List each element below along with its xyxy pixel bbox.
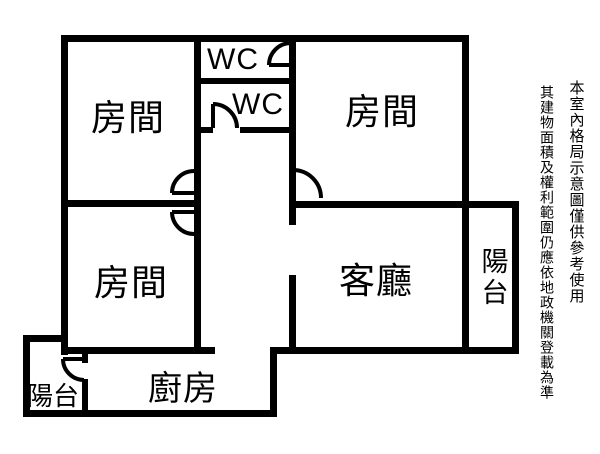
- wall-top-outer: [61, 35, 469, 42]
- wc-bottom-label: WC: [232, 90, 284, 120]
- wall-wc-divider: [194, 78, 296, 84]
- wc-top-door-arc: [269, 43, 291, 65]
- wc-top-label: WC: [207, 45, 259, 75]
- wall-center-lower: [289, 275, 296, 354]
- wall-wc-bottom-left-segment: [194, 127, 213, 133]
- wall-kitchen-right: [270, 347, 277, 417]
- bedroom-top-left-label: 房間: [91, 101, 165, 137]
- wall-left-outer: [61, 35, 68, 355]
- floor-plan-drawing: [0, 0, 600, 454]
- balcony-bottom-left-label: 陽台: [27, 384, 79, 410]
- bedroom-top-right-label: 房間: [345, 95, 419, 131]
- disclaimer-line-2: 其建物面積及權利範圍仍應依地政機關登載為準: [539, 85, 553, 400]
- balcony-bottom-left-door-arc: [63, 359, 84, 380]
- wall-balcony-bl-top: [23, 335, 68, 342]
- kitchen-label: 廚房: [148, 372, 218, 406]
- wall-balcony-right-outer: [512, 201, 519, 354]
- wall-left-bedrooms-divider: [61, 200, 201, 207]
- bedroom-bottom-left-door-arc: [172, 212, 194, 234]
- bedroom-top-right-door-arc: [293, 170, 321, 198]
- wall-wc-bottom-right-segment: [240, 127, 296, 133]
- balcony-right-label: 陽台: [479, 247, 506, 309]
- bedroom-top-left-door-arc: [172, 171, 194, 193]
- floor-plan-page: 房間 房間 房間 WC WC 客廳 廚房 陽台 陽台 本室內格局示意圖僅供參考使…: [0, 0, 600, 454]
- bedroom-bottom-left-label: 房間: [94, 266, 168, 302]
- wall-balcony-bl-divider-lower: [82, 379, 88, 417]
- wall-living-room-top: [289, 201, 519, 208]
- disclaimer-line-1: 本室內格局示意圖僅供參考使用: [569, 80, 584, 304]
- living-room-label: 客廳: [339, 264, 413, 300]
- wall-right-bedroom-balcony: [462, 35, 469, 354]
- wall-living-room-bottom: [270, 347, 519, 354]
